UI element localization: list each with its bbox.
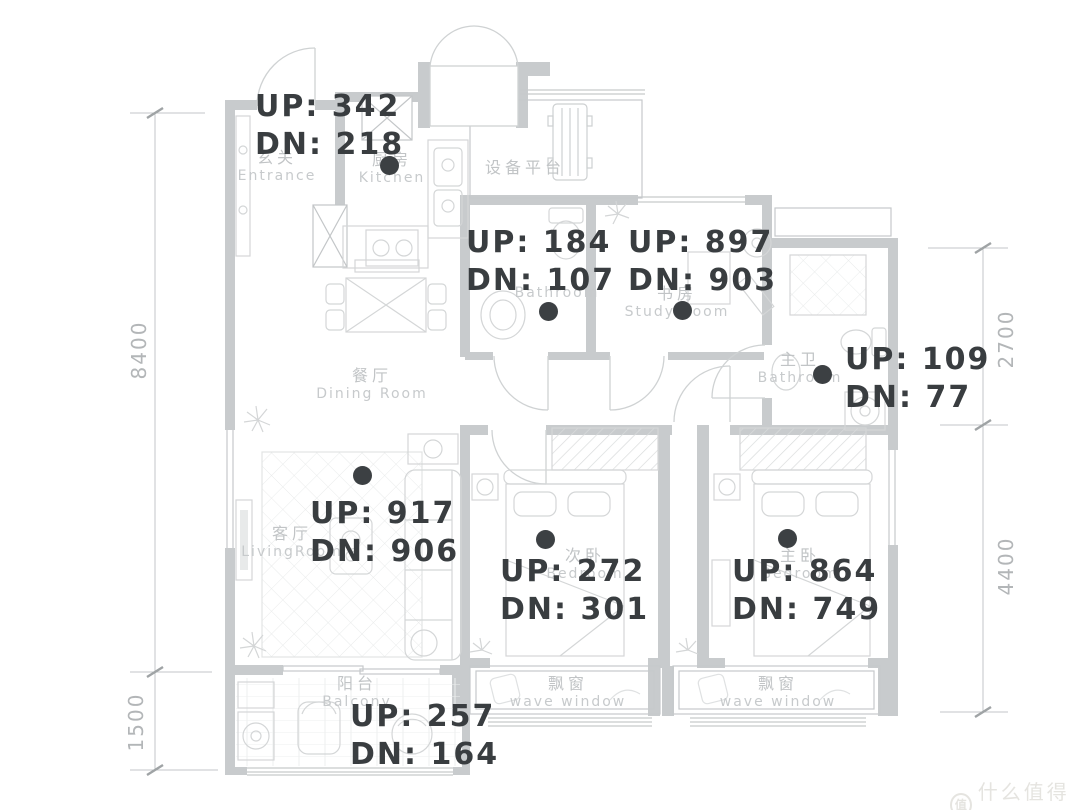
annotation-kitchen: UP: 342 DN: 218 [255,88,404,164]
annotation-bedroom-master: UP: 864 DN: 749 [732,553,881,629]
marker-dot-living-room[interactable] [353,466,372,485]
annotation-dn: DN: 301 [500,591,649,629]
annotation-study: UP: 897 DN: 903 [628,224,777,300]
bedroom-master-door [674,366,730,422]
annotation-up: UP: 109 [845,341,990,379]
bathroom-door [494,356,548,410]
annotation-living-room: UP: 917 DN: 906 [310,495,459,571]
watermark-logo: 值 [950,793,972,810]
dimension-label-1500: 1500 [124,693,148,752]
watermark: 值 什么值得买 [950,776,1080,810]
annotation-up: UP: 257 [350,698,499,736]
annotation-bathroom: UP: 184 DN: 107 [466,224,615,300]
marker-dot-bedroom-master[interactable] [778,529,797,548]
study-door [610,356,664,410]
annotation-dn: DN: 903 [628,262,777,300]
study-top-window [638,194,745,205]
dimension-label-4400: 4400 [994,537,1018,596]
ac-platform-outline [775,208,891,236]
marker-dot-study[interactable] [673,301,692,320]
annotation-up: UP: 184 [466,224,615,262]
annotation-master-bathroom: UP: 109 DN: 77 [845,341,990,417]
master-right-window [886,450,898,545]
annotation-dn: DN: 164 [350,736,499,774]
annotation-up: UP: 917 [310,495,459,533]
dining-furniture [326,260,446,332]
bay-window-right-frame [673,666,880,726]
living-left-window [224,430,236,548]
annotation-dn: DN: 906 [310,533,459,571]
dimension-left [130,108,218,775]
annotation-dn: DN: 749 [732,591,881,629]
annotation-up: UP: 864 [732,553,881,591]
marker-dot-bathroom[interactable] [539,302,558,321]
marker-dot-kitchen[interactable] [380,156,399,175]
dimension-label-2700: 2700 [994,310,1018,369]
elevator-doors [430,26,518,126]
watermark-text: 什么值得买 [978,776,1080,810]
marker-dot-master-bathroom[interactable] [813,365,832,384]
annotation-dn: DN: 107 [466,262,615,300]
annotation-up: UP: 342 [255,88,404,126]
annotation-up: UP: 272 [500,553,649,591]
annotation-balcony: UP: 257 DN: 164 [350,698,499,774]
annotation-bedroom-second: UP: 272 DN: 301 [500,553,649,629]
balcony-sliding-door [283,666,440,674]
entrance-cabinet [236,116,250,256]
bedroom-second-door [492,430,546,484]
dimension-label-8400: 8400 [127,321,151,380]
annotation-up: UP: 897 [628,224,777,262]
floorplan-canvas: 玄关 Entrance 厨房 Kitchen 设备平台 Bathroom 书房 … [0,0,1080,810]
marker-dot-bedroom-second[interactable] [536,530,555,549]
annotation-dn: DN: 77 [845,379,990,417]
equipment-platform-unit [548,104,592,180]
